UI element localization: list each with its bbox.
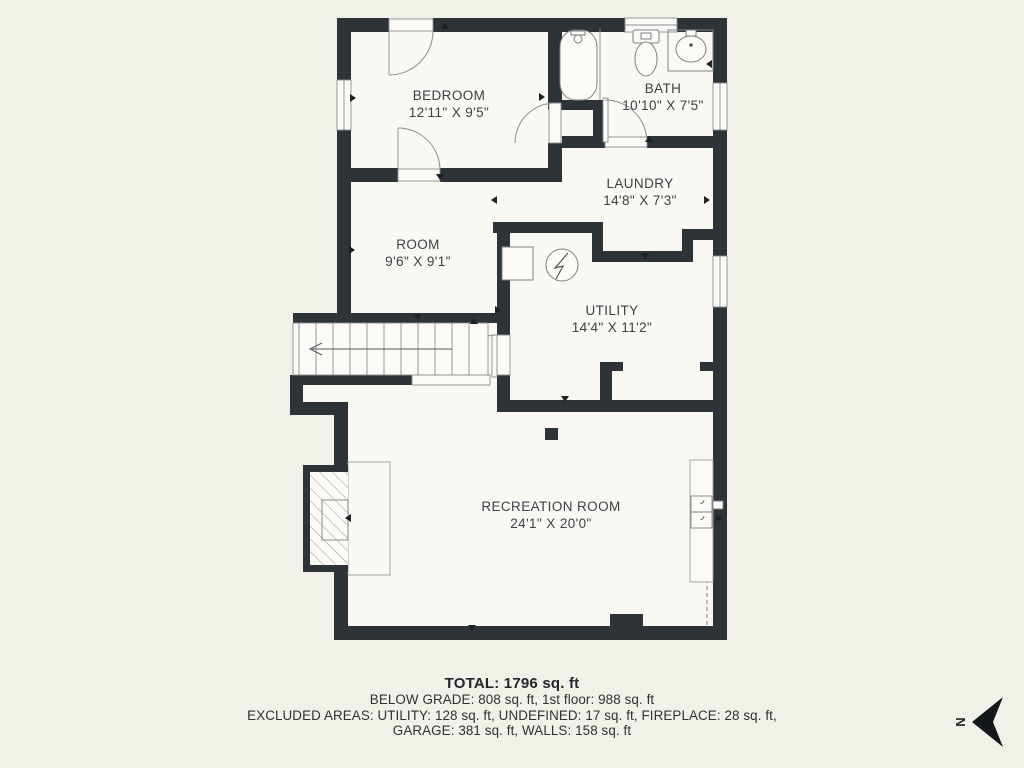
utility-dims: 14'4" X 11'2" — [572, 320, 653, 335]
north-label: N — [953, 717, 968, 726]
room-label: ROOM — [396, 237, 440, 252]
recreation-dims: 24'1" X 20'0" — [510, 516, 592, 531]
fireplace-hatch — [310, 472, 348, 565]
floor-plan-page: BEDROOM 12'11" X 9'5" BATH 10'10" X 7'5"… — [0, 0, 1024, 768]
laundry-dims: 14'8" X 7'3" — [603, 193, 677, 208]
window-left-bedroom — [337, 80, 351, 130]
window-right-bath — [713, 83, 727, 130]
recreation-label: RECREATION ROOM — [481, 499, 620, 514]
laundry-label: LAUNDRY — [606, 176, 673, 191]
summary-total: TOTAL: 1796 sq. ft — [445, 675, 580, 692]
room-dims: 9'6" X 9'1" — [385, 254, 451, 269]
north-arrow: N — [953, 697, 1003, 747]
bedroom-dims: 12'11" X 9'5" — [409, 105, 490, 120]
summary-excluded-1: EXCLUDED AREAS: UTILITY: 128 sq. ft, UND… — [247, 708, 777, 723]
summary-grade: BELOW GRADE: 808 sq. ft, 1st floor: 988 … — [370, 692, 655, 707]
furnace — [502, 247, 533, 280]
support-post — [545, 428, 558, 440]
fireplace-hearth — [348, 462, 390, 575]
summary-excluded-2: GARAGE: 381 sq. ft, WALLS: 158 sq. ft — [393, 723, 632, 738]
north-arrow-icon — [972, 697, 1003, 747]
window-right-utility — [713, 256, 727, 307]
water-heater — [546, 249, 578, 281]
toilet — [633, 30, 659, 76]
bath-label: BATH — [645, 81, 682, 96]
floor-plan-canvas: BEDROOM 12'11" X 9'5" BATH 10'10" X 7'5"… — [0, 0, 1024, 768]
bath-dims: 10'10" X 7'5" — [622, 98, 704, 113]
exterior-fixture — [713, 501, 723, 509]
bathtub — [560, 30, 597, 100]
area-summary: TOTAL: 1796 sq. ft BELOW GRADE: 808 sq. … — [247, 675, 777, 738]
bedroom-label: BEDROOM — [413, 88, 486, 103]
utility-label: UTILITY — [585, 303, 638, 318]
